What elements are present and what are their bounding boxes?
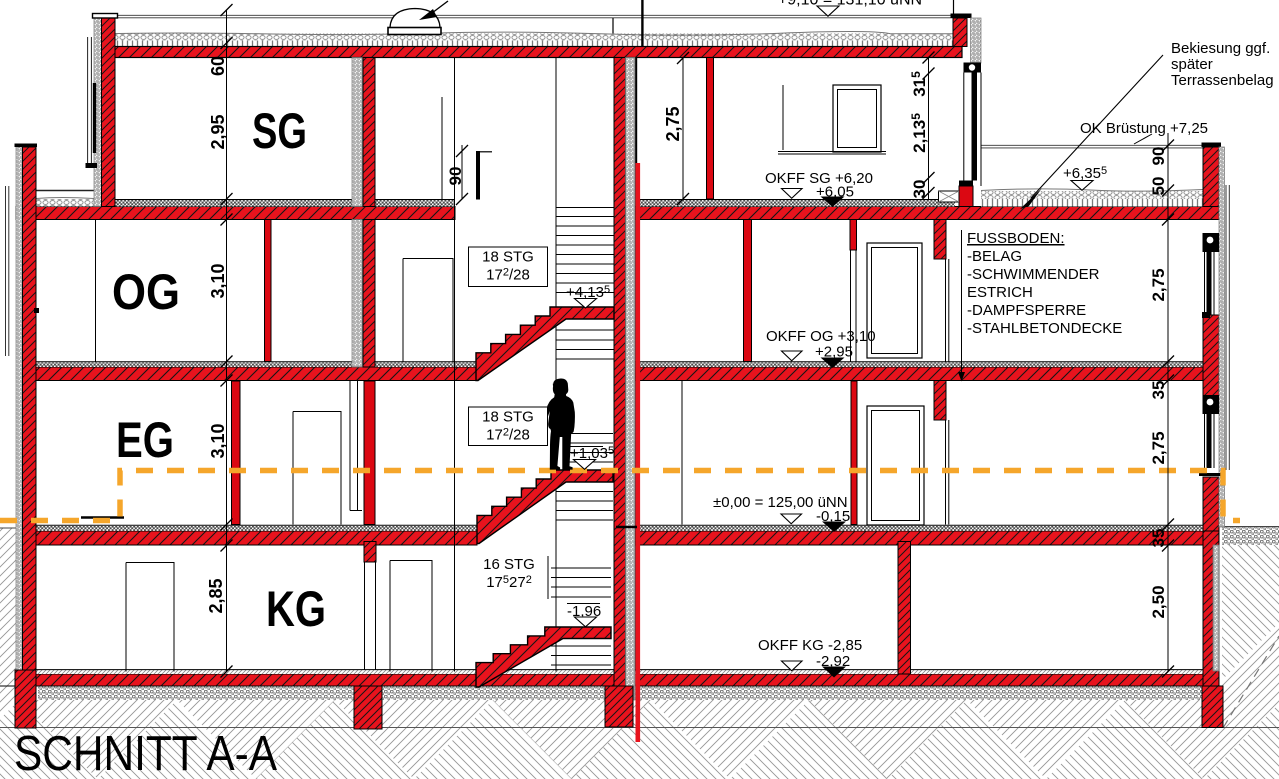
svg-text:2,85: 2,85 bbox=[206, 578, 226, 613]
svg-text:Bekiesung ggf.: Bekiesung ggf. bbox=[1171, 40, 1270, 57]
svg-text:OK Brüstung +7,25: OK Brüstung +7,25 bbox=[1080, 120, 1208, 137]
svg-text:SG: SG bbox=[252, 103, 307, 159]
svg-text:-SCHWIMMENDER: -SCHWIMMENDER bbox=[967, 266, 1100, 283]
svg-text:18 STG: 18 STG bbox=[482, 409, 534, 426]
svg-text:OG: OG bbox=[112, 264, 180, 320]
svg-text:3,10: 3,10 bbox=[208, 263, 228, 298]
svg-text:SCHNITT A-A: SCHNITT A-A bbox=[14, 727, 277, 779]
svg-text:2,50: 2,50 bbox=[1149, 585, 1168, 618]
svg-text:3,10: 3,10 bbox=[208, 423, 228, 458]
svg-text:175272: 175272 bbox=[486, 574, 532, 591]
svg-text:2,95: 2,95 bbox=[208, 114, 228, 149]
svg-text:OKFF OG +3,10: OKFF OG +3,10 bbox=[766, 328, 876, 345]
svg-text:60: 60 bbox=[208, 56, 228, 76]
svg-text:172/28: 172/28 bbox=[486, 427, 530, 444]
svg-text:+6,355: +6,355 bbox=[1063, 165, 1107, 182]
svg-text:-BELAG: -BELAG bbox=[967, 248, 1022, 265]
svg-text:OKFF KG -2,85: OKFF KG -2,85 bbox=[758, 637, 862, 654]
svg-text:KG: KG bbox=[266, 581, 326, 637]
svg-text:35: 35 bbox=[1149, 529, 1168, 548]
svg-text:18 STG: 18 STG bbox=[482, 249, 534, 266]
svg-text:90: 90 bbox=[1149, 147, 1168, 166]
svg-text:ESTRICH: ESTRICH bbox=[967, 284, 1033, 301]
svg-text:FUSSBODEN:: FUSSBODEN: bbox=[967, 230, 1065, 247]
svg-text:EG: EG bbox=[116, 412, 174, 468]
svg-text:30: 30 bbox=[910, 180, 929, 199]
svg-text:2,75: 2,75 bbox=[1149, 431, 1168, 464]
svg-text:-DAMPFSPERRE: -DAMPFSPERRE bbox=[967, 302, 1086, 319]
svg-text:16 STG: 16 STG bbox=[483, 556, 535, 573]
svg-text:90: 90 bbox=[446, 167, 465, 186]
svg-text:2,75: 2,75 bbox=[663, 106, 683, 141]
svg-text:-STAHLBETONDECKE: -STAHLBETONDECKE bbox=[967, 320, 1122, 337]
svg-text:2,75: 2,75 bbox=[1149, 268, 1168, 301]
svg-text:später: später bbox=[1171, 56, 1213, 73]
svg-text:50: 50 bbox=[1149, 177, 1168, 196]
svg-text:Terrassenbelag: Terrassenbelag bbox=[1171, 72, 1274, 89]
svg-text:35: 35 bbox=[1149, 381, 1168, 400]
svg-text:172/28: 172/28 bbox=[486, 267, 530, 284]
svg-text:+9,10 = 131,10 üNN: +9,10 = 131,10 üNN bbox=[778, 0, 922, 9]
